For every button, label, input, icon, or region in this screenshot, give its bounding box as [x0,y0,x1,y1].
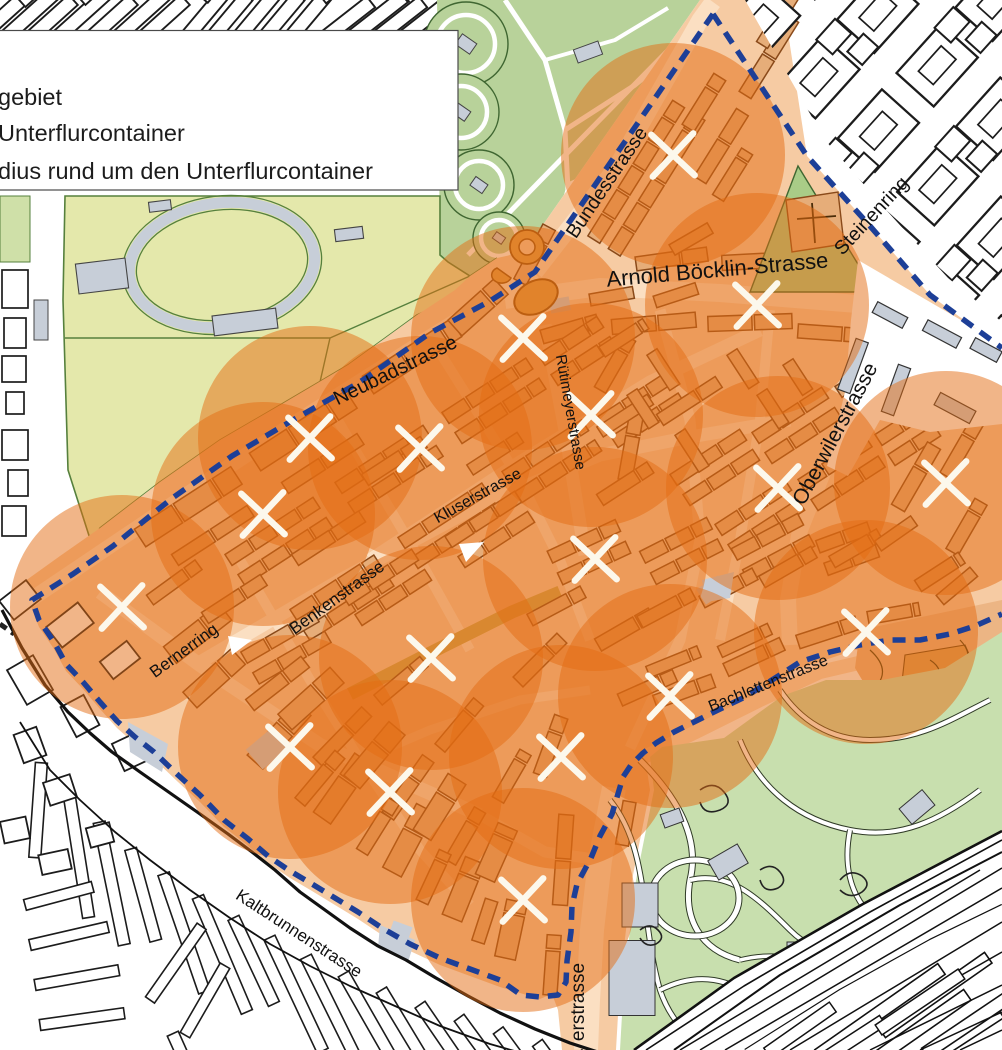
svg-text:dius rund um den Unterflurcont: dius rund um den Unterflurcontainer [0,158,373,184]
svg-text:gebiet: gebiet [0,84,62,110]
svg-text:Unterflurcontainer: Unterflurcontainer [0,120,185,146]
svg-text:erstrasse: erstrasse [568,963,589,1041]
